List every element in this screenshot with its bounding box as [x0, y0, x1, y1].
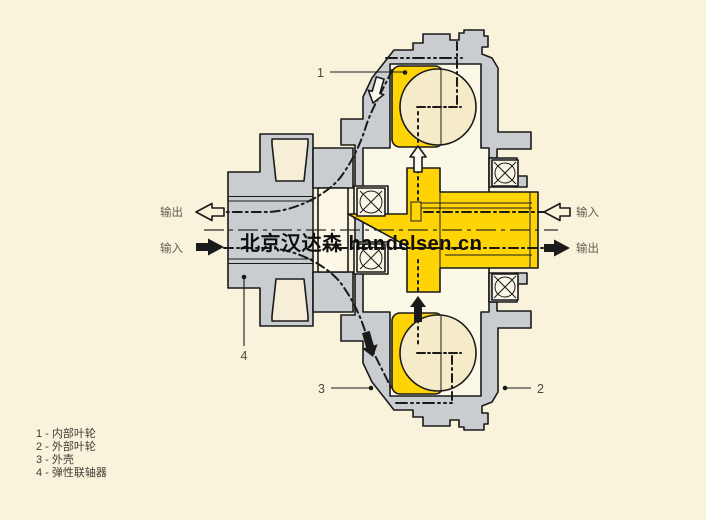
callout-dot-4 [242, 275, 247, 280]
legend-item-4: 4 - 弹性联轴器 [36, 465, 107, 479]
elastic-element-top [272, 139, 308, 181]
elastic-element-bottom [272, 279, 308, 321]
shaft-key [411, 202, 421, 221]
bearing-icon [492, 274, 518, 300]
legend-item-1: 1 - 内部叶轮 [36, 426, 96, 440]
legend-item-3: 3 - 外壳 [36, 452, 74, 466]
bearing-icon [357, 188, 385, 216]
port-label-right-bottom: 输出 [576, 241, 599, 255]
callout-number-4: 4 [241, 349, 248, 363]
port-label-left-top: 输出 [160, 205, 183, 219]
legend-item-2: 2 - 外部叶轮 [36, 439, 96, 453]
callout-number-2: 2 [537, 382, 544, 396]
callout-number-3: 3 [318, 382, 325, 396]
callout-dot-3 [369, 386, 374, 391]
port-label-right-top: 输入 [576, 205, 599, 219]
port-label-left-bottom: 输入 [160, 241, 183, 255]
callout-dot-2 [503, 386, 508, 391]
diagram-canvas: 输出 输入 输入 输出 1 2 3 4 1 - 内部叶轮 2 - 外部叶轮 3 … [0, 0, 706, 520]
page: { "watermark": { "text": "北京汉达森 handelse… [0, 0, 706, 520]
bearing-icon [492, 160, 518, 186]
callout-number-1: 1 [317, 66, 324, 80]
watermark-text: 北京汉达森 handelsen.cn [240, 231, 482, 255]
diagram-background [0, 0, 706, 520]
callout-dot-1 [403, 70, 408, 75]
